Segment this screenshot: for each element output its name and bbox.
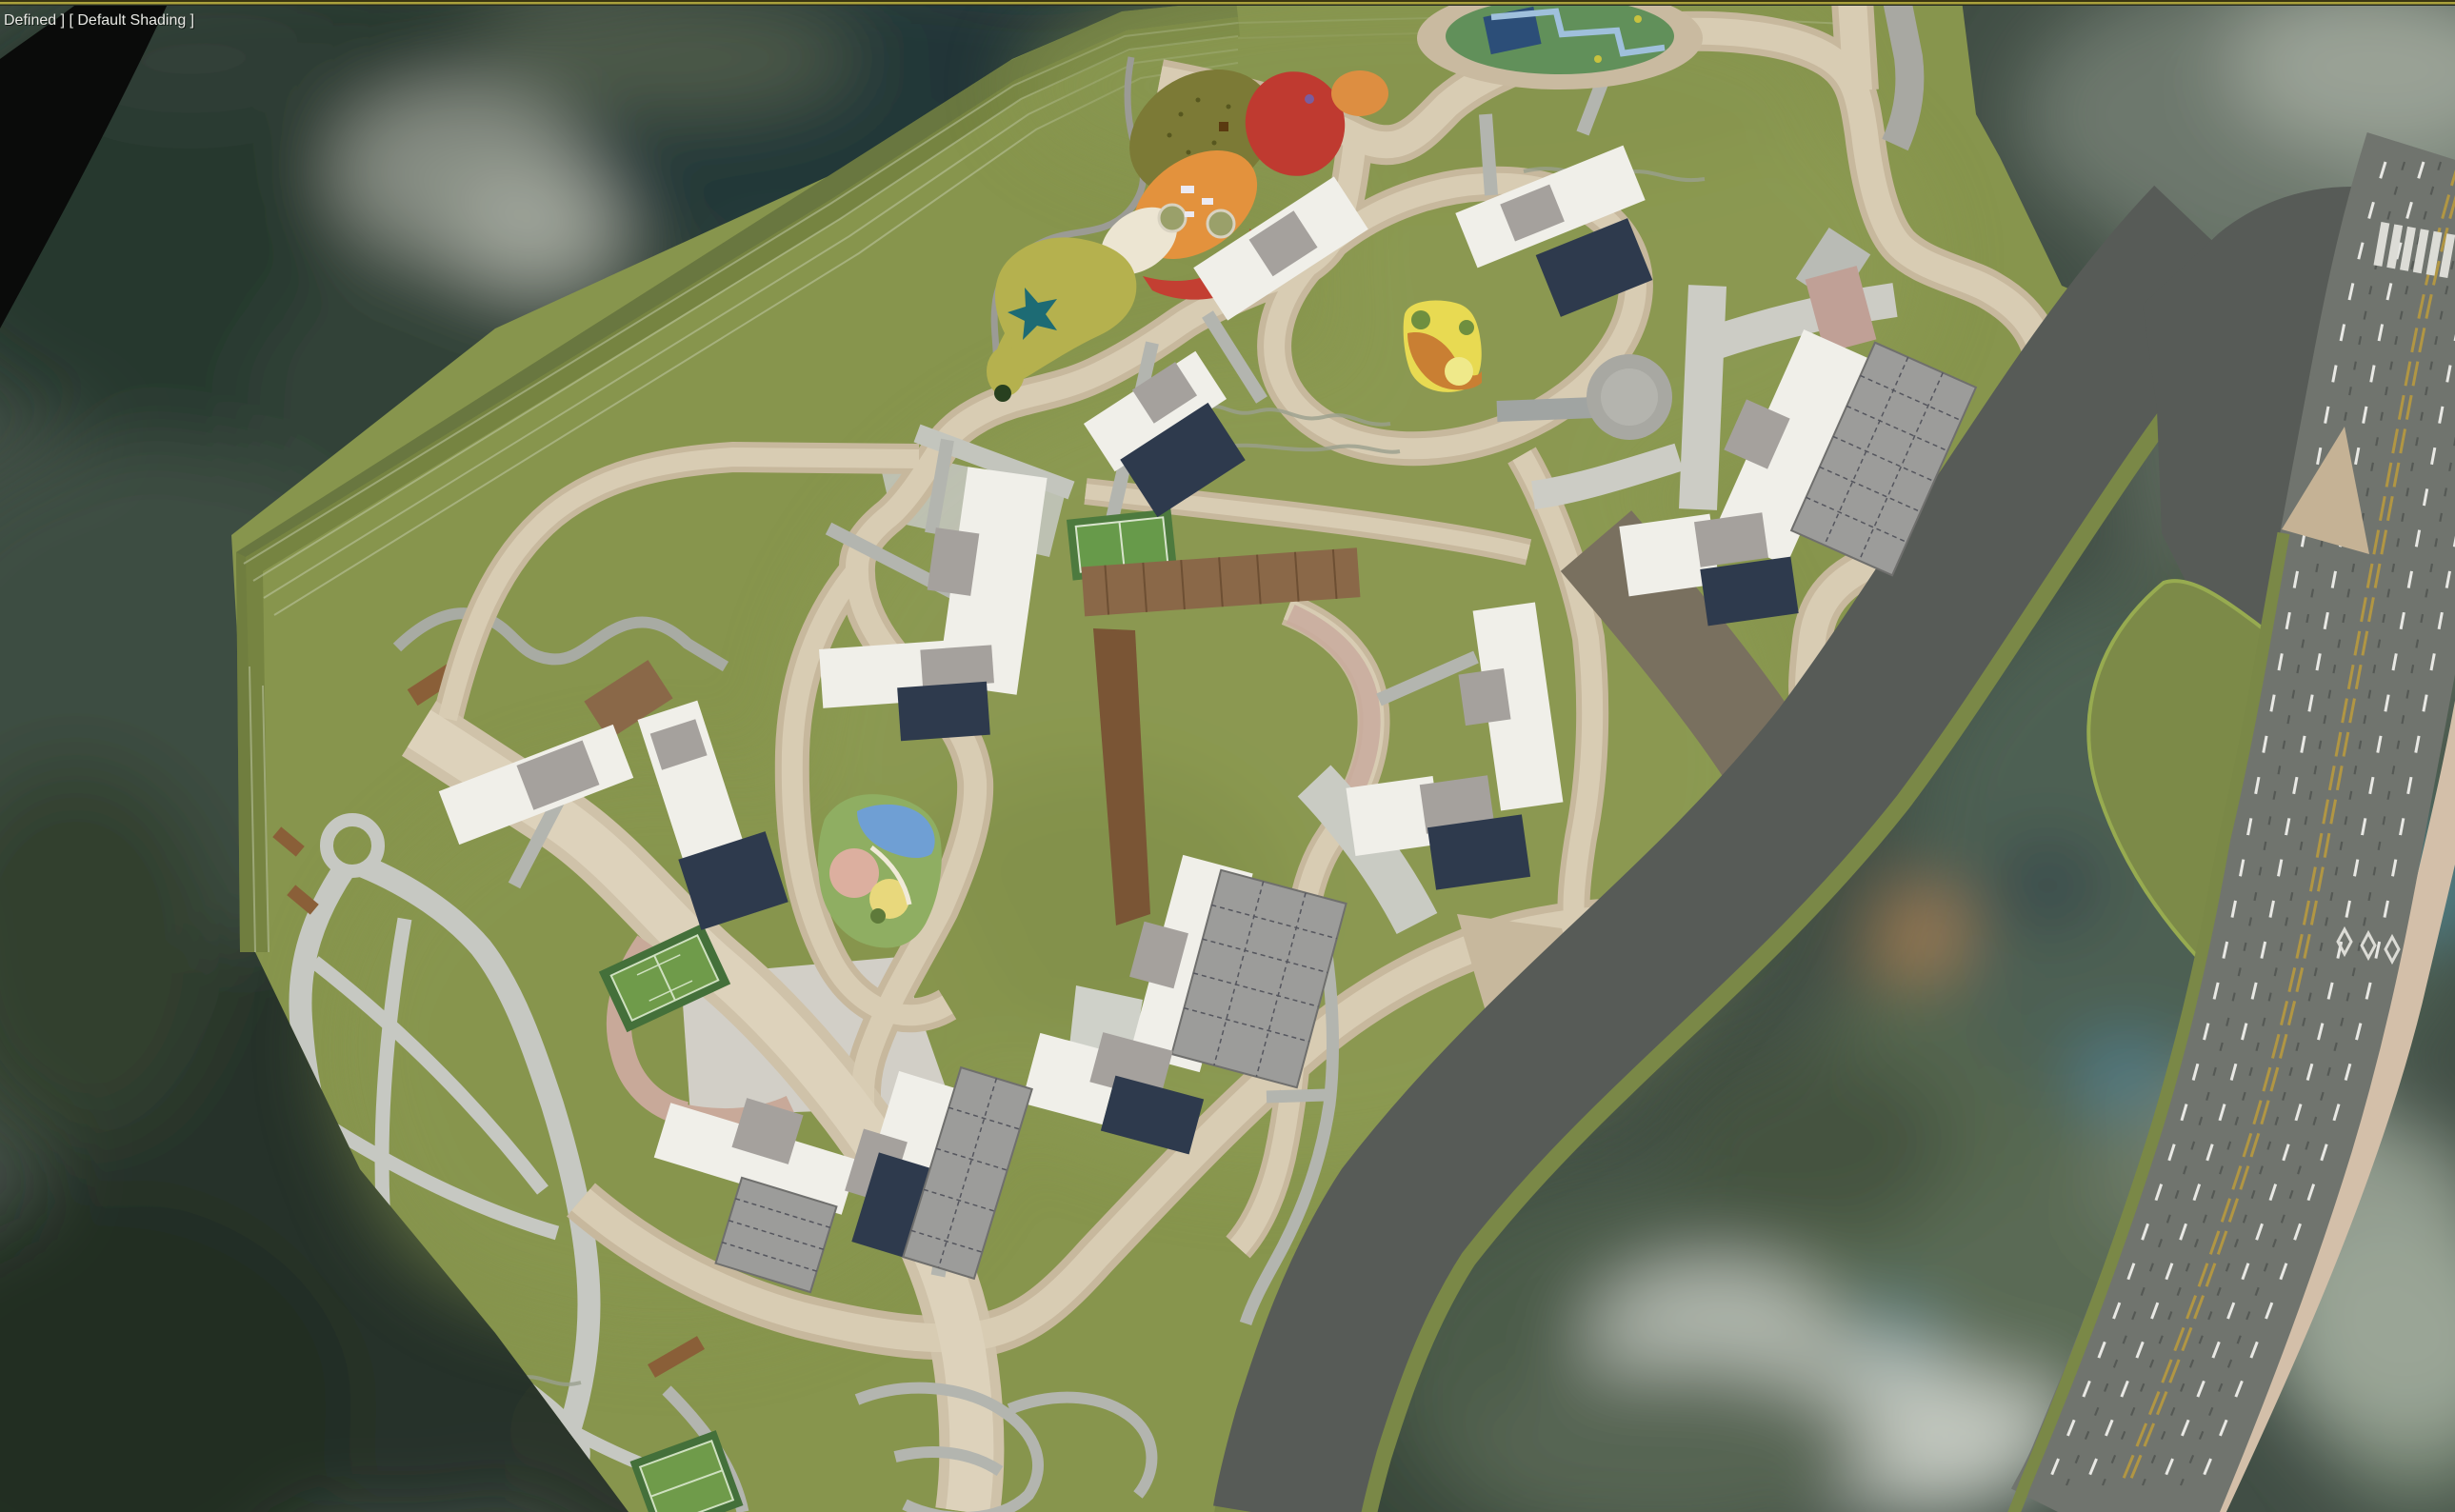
svg-text:Defined ] [ Default Shading ]: Defined ] [ Default Shading ] [4, 12, 194, 29]
